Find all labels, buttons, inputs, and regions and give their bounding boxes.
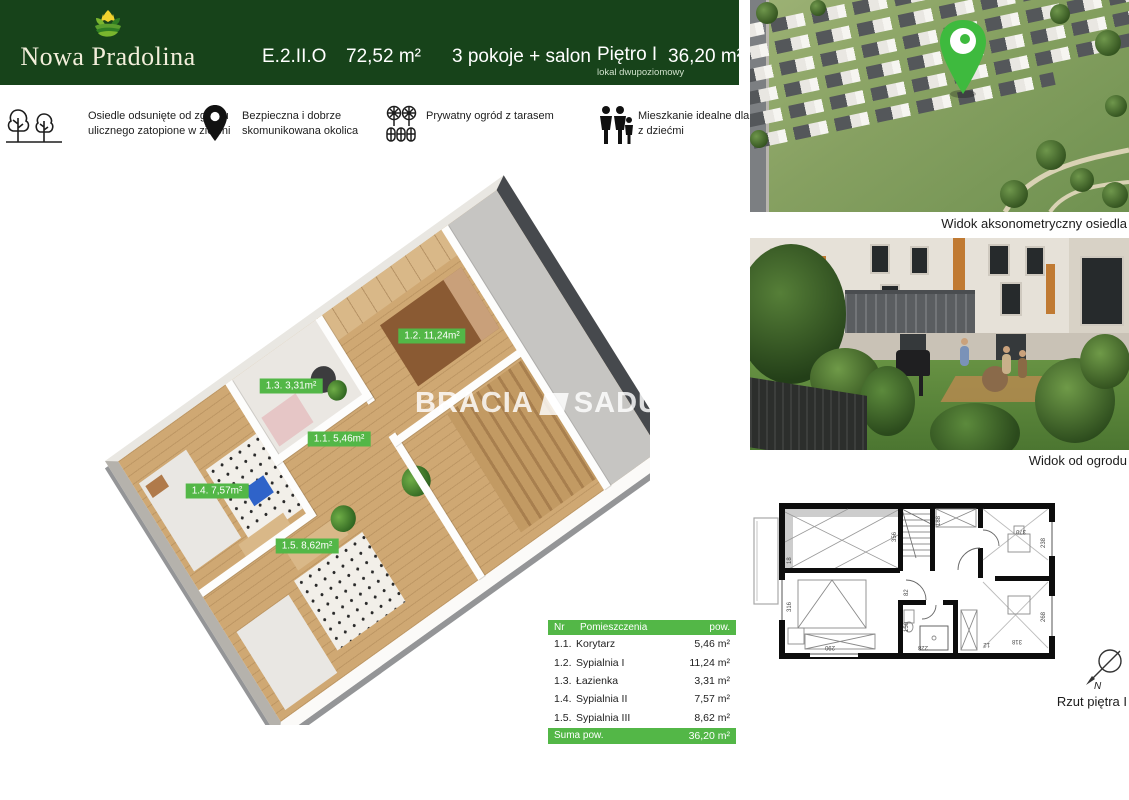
- window: [1000, 282, 1022, 316]
- row-name: Sypialnia III: [576, 712, 694, 724]
- tree: [1000, 180, 1028, 208]
- table-row: 1.4. Sypialnia II 7,57 m²: [548, 690, 736, 708]
- total-value: 36,20 m²: [689, 730, 730, 742]
- total-label: Suma pow.: [554, 730, 689, 742]
- col-nr: Nr: [554, 622, 576, 633]
- col-name: Pomieszczenia: [580, 622, 709, 633]
- window: [1025, 246, 1045, 276]
- unit-floor-area: 36,20 m²: [668, 46, 743, 68]
- col-area: pow.: [709, 622, 730, 633]
- trees-icon: [4, 104, 66, 148]
- compass-n-label: N: [1094, 681, 1102, 691]
- row-nr: 1.3.: [554, 675, 576, 687]
- window: [910, 246, 929, 275]
- dim-label: 188: [936, 515, 942, 526]
- row-area: 11,24 m²: [689, 657, 730, 669]
- row-area: 7,57 m²: [694, 693, 730, 705]
- rooms-table-total: Suma pow. 36,20 m²: [548, 728, 736, 744]
- row-area: 3,31 m²: [694, 675, 730, 687]
- tree: [1102, 182, 1128, 208]
- room-area-label: 1.3. 3,31m²: [260, 379, 323, 394]
- plan2d-caption: Rzut piętra I: [747, 694, 1127, 709]
- tree: [1050, 4, 1070, 24]
- table-row: 1.2. Sypialnia I 11,24 m²: [548, 653, 736, 671]
- window: [1080, 256, 1124, 326]
- dim-label: 318: [1011, 638, 1022, 644]
- row-nr: 1.5.: [554, 712, 576, 724]
- rooms-table-header: Nr Pomieszczenia pow.: [548, 620, 736, 635]
- unit-code: E.2.II.O: [262, 46, 326, 68]
- orange-panel: [1046, 264, 1055, 314]
- tree: [756, 2, 778, 24]
- room-area-label: 1.5. 8,62m²: [276, 539, 339, 554]
- row-name: Korytarz: [576, 638, 694, 650]
- dim-label: 238: [1041, 537, 1047, 548]
- row-nr: 1.2.: [554, 657, 576, 669]
- family-icon: [594, 104, 634, 146]
- room-area-label: 1.2. 11,24m²: [398, 329, 465, 344]
- row-name: Sypialnia II: [576, 693, 694, 705]
- dim-label: 18: [787, 557, 793, 564]
- feature-garden: Prywatny ogród z tarasem: [384, 104, 418, 152]
- garden-icon: [384, 104, 418, 144]
- row-nr: 1.4.: [554, 693, 576, 705]
- aerial-caption: Widok aksonometryczny osiedla: [747, 216, 1127, 231]
- watermark-word: SADURSCY: [574, 387, 650, 420]
- dim-label: 228: [917, 644, 928, 650]
- row-name: Sypialnia I: [576, 657, 689, 669]
- table-row: 1.1. Korytarz 5,46 m²: [548, 635, 736, 653]
- tree: [750, 130, 768, 148]
- unit-rooms: 3 pokoje + salon: [452, 46, 591, 68]
- unit-floor-note: lokal dwupoziomowy: [597, 67, 684, 78]
- location-pin-icon: [202, 104, 228, 144]
- agency-watermark: BRACIA SADURSCY: [415, 387, 650, 420]
- person: [1018, 358, 1027, 378]
- room-area-label: 1.1. 5,46m²: [308, 432, 371, 447]
- tree: [1105, 95, 1127, 117]
- window: [988, 244, 1010, 276]
- dim-label: 268: [1041, 611, 1047, 622]
- dim-label: 356: [892, 531, 898, 542]
- dim-label: 12: [983, 641, 990, 647]
- bush: [1080, 334, 1129, 389]
- row-area: 8,62 m²: [694, 712, 730, 724]
- watermark-word: BRACIA: [415, 387, 534, 420]
- balcony: [845, 290, 975, 334]
- tree: [810, 0, 826, 16]
- dim-label: 370: [1015, 528, 1026, 534]
- feature-text: Prywatny ogród z tarasem: [426, 109, 566, 124]
- window: [870, 244, 890, 274]
- bush: [860, 366, 915, 436]
- rooms-table: Nr Pomieszczenia pow. 1.1. Korytarz 5,46…: [548, 620, 736, 744]
- property-sheet: Nowa Pradolina E.2.II.O 72,52 m² 3 pokoj…: [0, 0, 1129, 800]
- header-bar: Nowa Pradolina E.2.II.O 72,52 m² 3 pokoj…: [0, 0, 739, 85]
- floorplan-2d: 316 18 290 356 150 228 12 318 268 370 23…: [750, 500, 1065, 664]
- dim-label: 150: [904, 621, 910, 632]
- north-compass-icon: N: [1082, 645, 1128, 691]
- row-area: 5,46 m²: [694, 638, 730, 650]
- person: [1002, 354, 1011, 374]
- feature-greenery: Osiedle odsunięte od zgiełku ulicznego z…: [4, 104, 66, 152]
- brand-name: Nowa Pradolina: [20, 42, 195, 71]
- dim-label: 316: [787, 601, 793, 612]
- feature-location: Bezpieczna i dobrze skomunikowana okolic…: [202, 104, 228, 152]
- brand-block: Nowa Pradolina: [18, 6, 198, 72]
- row-nr: 1.1.: [554, 638, 576, 650]
- table-row: 1.5. Sypialnia III 8,62 m²: [548, 709, 736, 727]
- garden-view-image: [750, 238, 1129, 450]
- tree: [1036, 140, 1066, 170]
- dim-label: 82: [904, 589, 910, 596]
- tree: [1095, 30, 1121, 56]
- dim-label: 290: [824, 644, 835, 650]
- room-area-label: 1.4. 7,57m²: [186, 484, 249, 499]
- person: [960, 346, 969, 366]
- feature-text: Osiedle odsunięte od zgiełku ulicznego z…: [88, 109, 268, 140]
- aerial-view-image: [750, 0, 1129, 212]
- row-name: Łazienka: [576, 675, 694, 687]
- garden-caption: Widok od ogrodu: [747, 453, 1127, 468]
- tree: [1070, 168, 1094, 192]
- unit-total-area: 72,52 m²: [346, 46, 421, 68]
- feature-family: Mieszkanie idealne dla rodzin z dziećmi: [594, 104, 634, 152]
- unit-floor: Piętro I: [597, 44, 657, 66]
- table-row: 1.3. Łazienka 3,31 m²: [548, 672, 736, 690]
- agency-logo-mark: [539, 393, 568, 415]
- tulip-logo-icon: [90, 8, 126, 42]
- map-pin-icon: [935, 18, 991, 96]
